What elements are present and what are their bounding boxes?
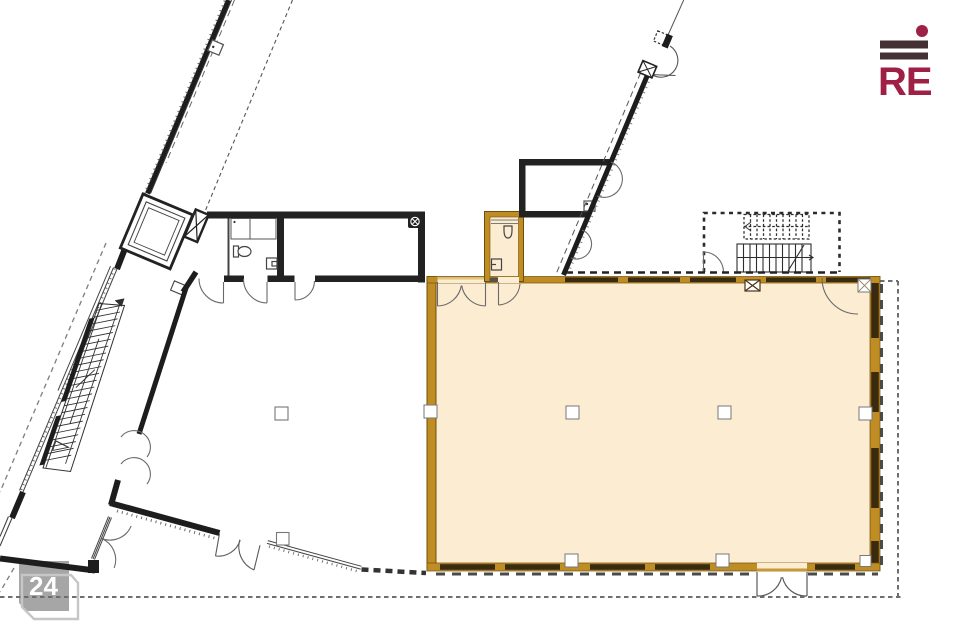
svg-text:24: 24	[29, 571, 58, 601]
svg-text:RE: RE	[878, 60, 932, 104]
